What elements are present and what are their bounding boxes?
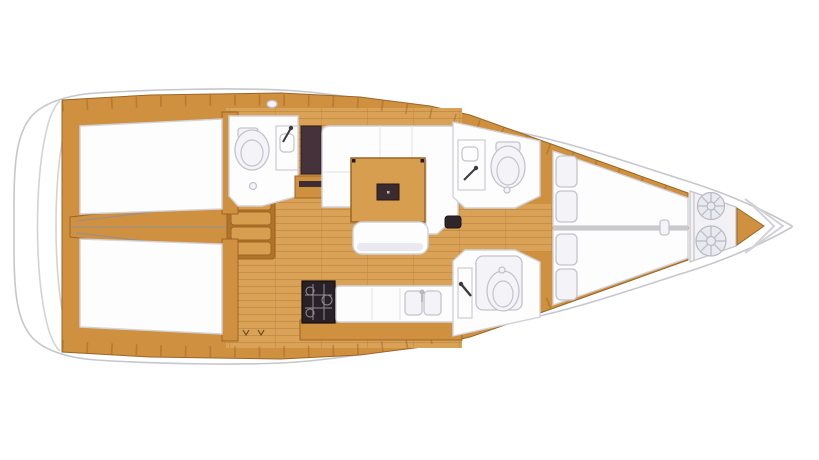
rope-coil	[696, 226, 726, 256]
boat-floorplan-page	[0, 0, 819, 460]
boat-floorplan	[0, 0, 819, 460]
corridor-floor	[462, 204, 554, 252]
aft-head-vanity	[276, 126, 298, 170]
faucet-base	[474, 166, 478, 170]
table-corner-mark	[421, 159, 425, 163]
forward-head-starboard	[453, 250, 540, 336]
berth-pillow	[556, 191, 577, 222]
step-tread	[231, 227, 271, 240]
rope-coil-hub	[707, 202, 715, 210]
floor-drain	[504, 187, 510, 193]
galley-sink	[424, 291, 441, 315]
aft-cabin-port	[80, 112, 238, 214]
toilet-bowl	[487, 271, 519, 311]
berth-pillow	[556, 269, 577, 300]
toilet-bowl	[235, 130, 269, 170]
berth-pillow	[556, 234, 577, 265]
aft-port-berth	[80, 119, 222, 214]
centerline-handle	[660, 220, 669, 235]
floor-drain	[250, 183, 257, 190]
table-inlay-dot	[387, 191, 390, 194]
rope-coil	[698, 193, 725, 220]
aft-starboard-berth	[80, 239, 222, 334]
rope-coil-hub	[707, 237, 716, 246]
galley-sink	[405, 291, 422, 315]
aft-head	[229, 101, 298, 207]
aft-cabin-starboard	[80, 239, 238, 341]
deck-hatch	[267, 101, 277, 108]
floor-drain	[499, 267, 505, 273]
faucet-base	[289, 126, 293, 130]
stove-top	[302, 281, 335, 323]
table-pedestal	[445, 216, 461, 228]
galley-counter	[336, 286, 462, 322]
bench-shade	[357, 243, 423, 251]
wardrobe-locker	[301, 126, 321, 174]
table-corner-mark	[352, 159, 356, 163]
berth-pillow	[556, 156, 577, 187]
aft-starboard-footboard	[222, 239, 238, 341]
shower-handle-base	[459, 282, 463, 286]
toilet-bowl	[491, 146, 525, 188]
